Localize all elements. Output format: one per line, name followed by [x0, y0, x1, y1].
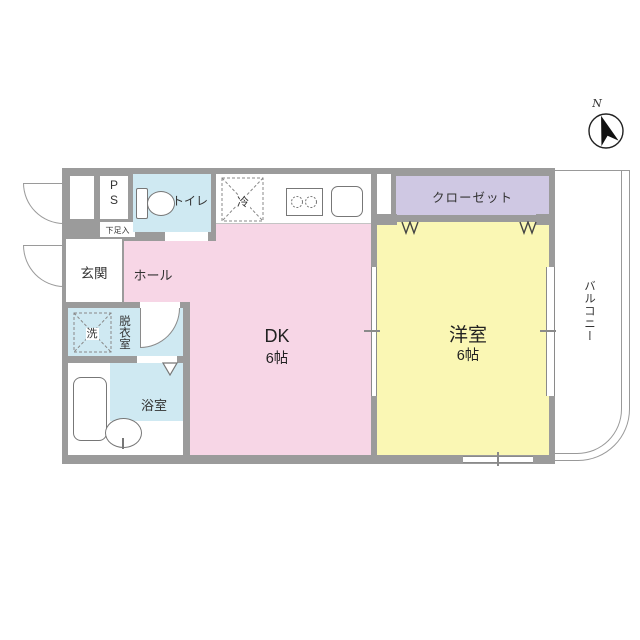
wall-stub-left [377, 214, 397, 225]
refrigerator-label: 冷 [226, 193, 260, 210]
meter-box [70, 176, 94, 219]
bath-folding-door-icon [162, 362, 178, 376]
pipe-space-label: PS [107, 178, 121, 208]
bathtub [73, 377, 107, 441]
north-label: N [590, 97, 604, 110]
western-room-label: 洋室 [426, 320, 510, 347]
exterior-door-swing-lower [23, 245, 64, 287]
toilet-room: トイレ [133, 174, 211, 232]
pipe-space: PS [100, 176, 128, 219]
accordion-door-icon [401, 221, 419, 235]
kitchen-counter: 冷 [216, 174, 371, 224]
closet-opening-line [396, 215, 536, 217]
balcony-label: バルコニー [581, 280, 597, 340]
toilet-label: トイレ [169, 192, 211, 209]
closet: クローゼット [396, 176, 549, 215]
shoe-cabinet: 下足入 [100, 222, 135, 237]
accordion-door-icon [519, 221, 537, 235]
toilet-door-opening [165, 232, 208, 241]
bath-sink-pedestal [122, 438, 124, 449]
shoe-cabinet-label: 下足入 [100, 225, 135, 236]
western-room-size: 6帖 [426, 344, 510, 365]
dk-label: DK [237, 326, 317, 347]
sink [331, 186, 363, 217]
stove-icon [286, 188, 323, 216]
entrance: 玄関 [66, 239, 122, 302]
bathroom-label: 浴室 [122, 395, 186, 414]
bottom-window-tick [497, 452, 499, 466]
floor-plan: PS 下足入 トイレ 冷 クローゼット 洋室 [0, 0, 640, 640]
closet-label: クローゼット [396, 187, 549, 206]
wall-stub-right [536, 214, 555, 225]
entrance-label: 玄関 [66, 262, 122, 282]
hall-label: ホール [126, 265, 180, 284]
western-room: 洋室 6帖 [377, 222, 549, 455]
sliding-door-dk-western [371, 267, 377, 396]
balcony-window-tick [540, 330, 556, 332]
balcony-window [546, 267, 555, 396]
dk-size: 6帖 [237, 347, 317, 368]
washer-label: 洗 [80, 325, 104, 341]
sliding-door-tick [364, 330, 380, 332]
north-arrow-icon [586, 110, 626, 150]
bathroom: 浴室 [68, 363, 183, 455]
dressing-room-label: 脱衣室 [117, 310, 130, 354]
exterior-door-swing-upper [23, 183, 64, 224]
